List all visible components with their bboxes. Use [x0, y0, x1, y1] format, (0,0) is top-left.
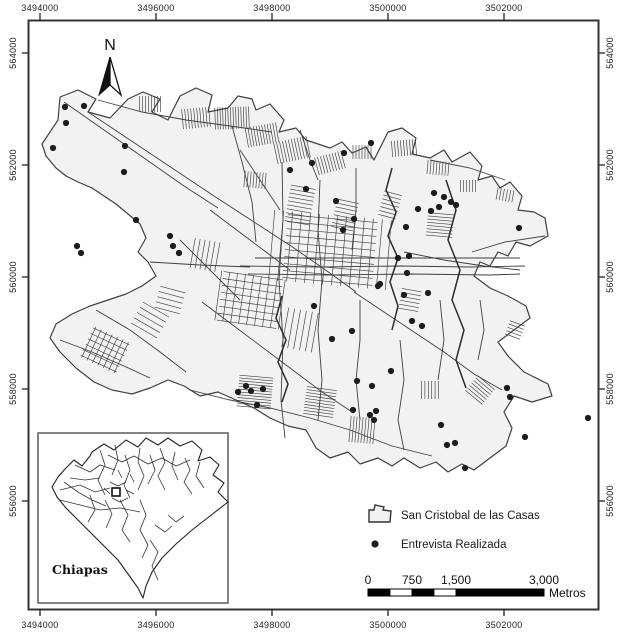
interview-dot: [351, 216, 357, 222]
axis-label: 558000: [8, 373, 18, 405]
interview-dot: [522, 434, 528, 440]
interview-dot: [406, 253, 412, 259]
axis-label: 562000: [605, 149, 615, 181]
inset-label: Chiapas: [52, 562, 108, 577]
top-axis: 3494000 3496000 3498000 3500000 3502000: [21, 3, 522, 13]
interview-dot: [373, 408, 379, 414]
axis-label: 560000: [605, 261, 615, 293]
legend-dot-symbol: [371, 540, 378, 547]
scale-bar-segment: [390, 589, 412, 596]
scale-bar-segment: [368, 589, 390, 596]
interview-dot: [63, 120, 69, 126]
interview-dot: [436, 204, 442, 210]
interview-dot: [395, 255, 401, 261]
inset-map: Chiapas: [38, 433, 228, 603]
interview-dot: [367, 412, 373, 418]
axis-label: 3498000: [253, 620, 290, 630]
interview-dot: [349, 328, 355, 334]
axis-label: 3502000: [485, 3, 522, 13]
axis-label: 3502000: [485, 620, 522, 630]
axis-label: 3494000: [21, 620, 58, 630]
interview-dot: [504, 385, 510, 391]
interview-dot: [62, 104, 68, 110]
interview-dot: [425, 290, 431, 296]
interview-dot: [81, 103, 87, 109]
interview-dot: [404, 270, 410, 276]
interview-dot: [444, 442, 450, 448]
interview-dot: [452, 440, 458, 446]
interview-dot: [167, 233, 173, 239]
interview-dot: [248, 388, 254, 394]
axis-label: 3496000: [137, 3, 174, 13]
interview-dot: [428, 208, 434, 214]
axis-label: 564000: [605, 37, 615, 69]
interview-dot: [403, 224, 409, 230]
interview-dot: [287, 167, 293, 173]
axis-label: 3500000: [369, 620, 406, 630]
interview-dot: [507, 394, 513, 400]
interview-dot: [585, 415, 591, 421]
interview-dot: [350, 407, 356, 413]
interview-dot: [133, 217, 139, 223]
interview-dot: [462, 465, 468, 471]
axis-label: 556000: [605, 485, 615, 517]
axis-label: 560000: [8, 261, 18, 293]
interview-dot: [409, 318, 415, 324]
axis-label: 558000: [605, 373, 615, 405]
scale-bar-segment: [434, 589, 456, 596]
right-axis: 564000 562000 560000 558000 556000: [605, 37, 615, 517]
interview-dot: [170, 243, 176, 249]
interview-dot: [438, 422, 444, 428]
interview-dot: [311, 303, 317, 309]
scale-bar-segment: [412, 589, 434, 596]
interview-dot: [333, 198, 339, 204]
interview-dot: [369, 383, 375, 389]
interview-dot: [419, 323, 425, 329]
legend-item-label: San Cristobal de las Casas: [401, 510, 540, 522]
interview-dot: [341, 150, 347, 156]
interview-dot: [50, 145, 56, 151]
axis-label: 3498000: [253, 3, 290, 13]
axis-label: 3500000: [369, 3, 406, 13]
scale-unit: Metros: [549, 586, 586, 600]
interview-dot: [74, 243, 80, 249]
scale-value: 3,000: [529, 573, 559, 587]
interview-dot: [243, 383, 249, 389]
axis-label: 556000: [8, 485, 18, 517]
interview-dot: [176, 250, 182, 256]
interview-dot: [309, 160, 315, 166]
interview-dot: [368, 140, 374, 146]
scale-bar-segment: [456, 589, 544, 596]
scale-value: 0: [365, 573, 372, 587]
scale-value: 750: [402, 573, 422, 587]
map-figure: 3494000 3496000 3498000 3500000 3502000 …: [0, 0, 623, 638]
interview-dot: [441, 194, 447, 200]
interview-dot: [260, 386, 266, 392]
north-arrow-label: N: [104, 37, 116, 54]
axis-label: 564000: [8, 37, 18, 69]
legend-item-label: Entrevista Realizada: [401, 539, 507, 551]
scale-bar-segments: [368, 589, 544, 596]
interview-dot: [415, 206, 421, 212]
interview-dot: [340, 227, 346, 233]
scale-value: 1,500: [441, 573, 471, 587]
bottom-axis: 3494000 3496000 3498000 3500000 3502000: [21, 620, 522, 630]
interview-dot: [78, 250, 84, 256]
interview-dot: [375, 283, 381, 289]
interview-dot: [371, 417, 377, 423]
interview-dot: [401, 292, 407, 298]
interview-dot: [516, 225, 522, 231]
interview-dot: [121, 169, 127, 175]
interview-dot: [453, 202, 459, 208]
interview-dot: [254, 402, 260, 408]
axis-label: 3496000: [137, 620, 174, 630]
interview-dot: [235, 389, 241, 395]
interview-dot: [303, 186, 309, 192]
interview-dot: [431, 190, 437, 196]
left-axis: 564000 562000 560000 558000 556000: [8, 37, 18, 517]
axis-label: 3494000: [21, 3, 58, 13]
interview-dot: [122, 143, 128, 149]
interview-dot: [354, 378, 360, 384]
axis-label: 562000: [8, 149, 18, 181]
interview-dot: [329, 336, 335, 342]
interview-dot: [388, 368, 394, 374]
